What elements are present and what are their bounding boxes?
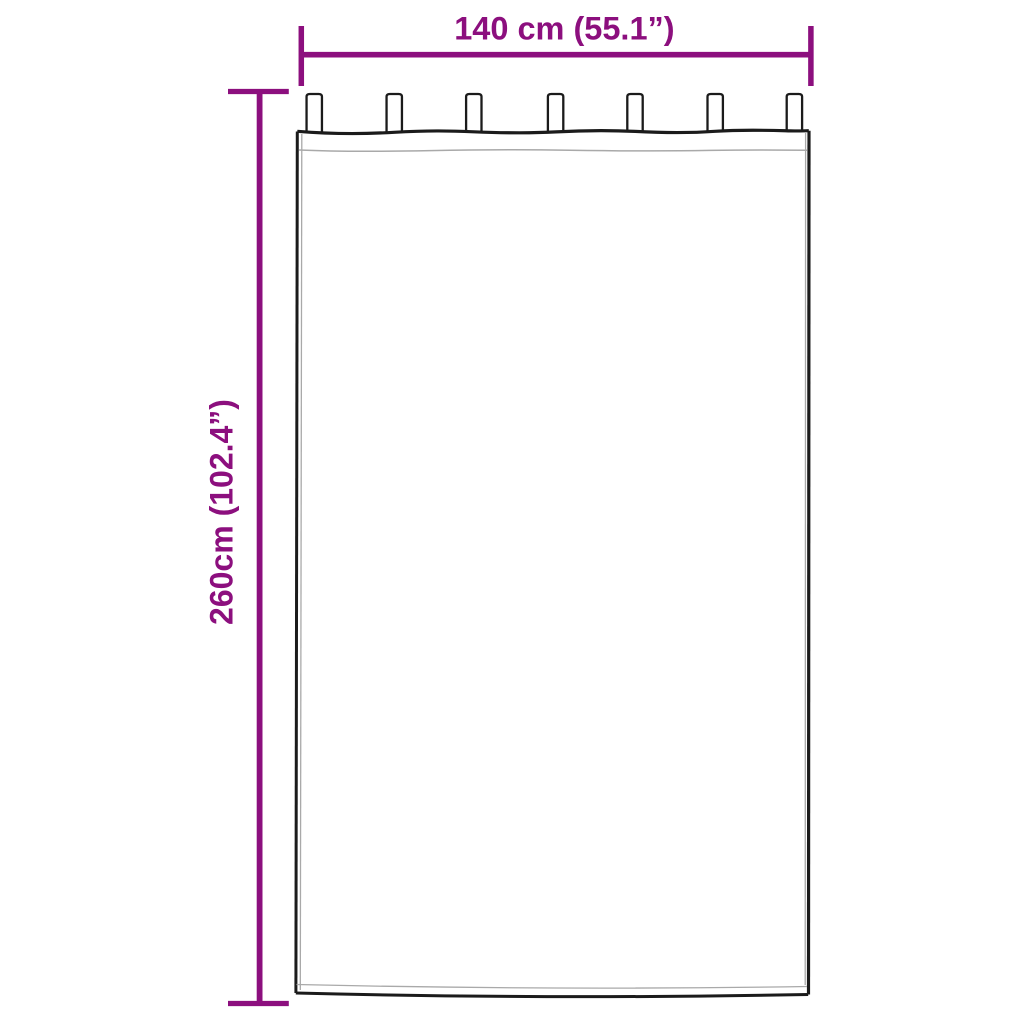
svg-text:260cm (102.4”): 260cm (102.4”) <box>204 399 240 625</box>
svg-text:140 cm (55.1”): 140 cm (55.1”) <box>454 10 674 46</box>
